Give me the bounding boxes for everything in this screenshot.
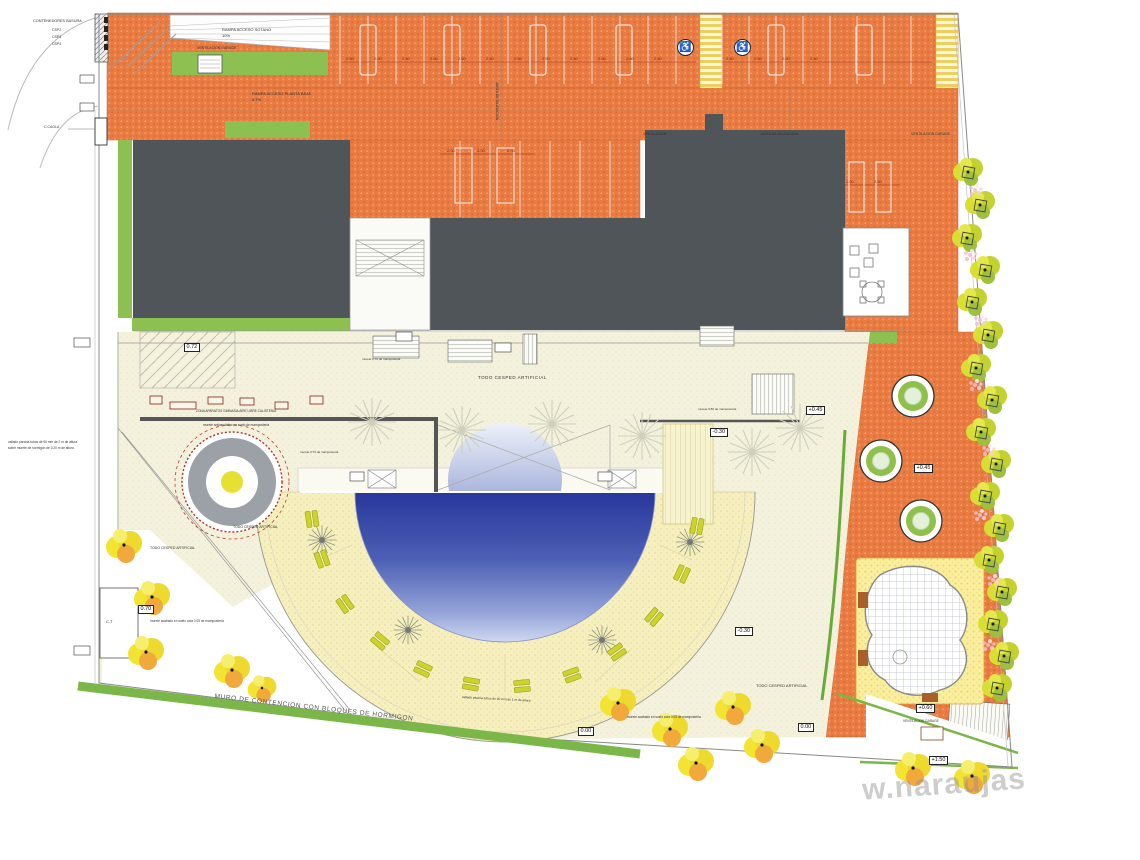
dim-stall: 2.50: [754, 56, 762, 61]
site-plan: CONTENEDORES BASURA CSP2 CSP3 CSP4 C.CAO…: [0, 0, 1140, 860]
dim-stall: 2.50: [402, 56, 410, 61]
dim-stall: 2.50: [430, 56, 438, 61]
dim-stall: 2.50: [726, 56, 734, 61]
label-cesped-bottom: TODO CESPED ARTIFICIAL: [756, 684, 807, 688]
label-vent-garage-bottom: VENTILACION GARAGE: [903, 720, 939, 724]
marker-minus030-b: -0.30: [735, 627, 753, 636]
marker-072: 0.72: [184, 343, 200, 352]
dim-stall: 2.50: [570, 56, 578, 61]
label-junta-vertical: JUNTA DE DILATACION: [494, 82, 498, 120]
label-vent-garage-right: VENTILACION GARAGE: [911, 133, 950, 137]
dim-stall: 2.50: [810, 56, 818, 61]
label-ventilacion: VENTILACION: [643, 133, 666, 137]
label-ct: C.T: [106, 620, 112, 624]
label-zona-aparatos: ZONA APARATOS GIMNASIA AIRE LIBRE CALIST…: [196, 410, 276, 414]
dim-stall: 2.50: [542, 56, 550, 61]
label-rampa-pb-slope: 5.7%: [252, 98, 261, 102]
handicap-icon: ♿: [677, 39, 694, 56]
waste-containers: [95, 14, 108, 62]
label-rampa-sotano: RAMPA ACCESO SOTANO: [222, 28, 271, 32]
label-contenedores: CONTENEDORES BASURA: [33, 19, 82, 23]
marker-plus045-b: +0.45: [914, 464, 933, 473]
dim-stall: 2.50: [458, 56, 466, 61]
dim-stall: 2.50: [514, 56, 522, 61]
marker-plus045-a: +0.45: [806, 406, 825, 415]
dim-stall: 2.50: [598, 56, 606, 61]
dim-stall: 2.50: [654, 56, 662, 61]
label-csp2: CSP2: [52, 29, 61, 33]
striped-ramp: [663, 424, 713, 524]
label-murete-005-a: murete acabado en suelo cota 0.05 de mam…: [150, 620, 224, 624]
playground: [856, 558, 984, 704]
label-vent-garage-left: VENTILACION GARAGE: [197, 47, 236, 51]
label-cesped-top: TODO CESPED ARTIFICIAL: [478, 376, 547, 381]
marker-minus030-a: -0.30: [710, 428, 728, 437]
terrace-room: [843, 228, 909, 316]
dim-stall: 2.50: [626, 56, 634, 61]
label-junta-dilatacion: JUNTA DE DILATACION: [760, 133, 798, 137]
label-vallado-parcela-1: vallado parcela tubos de 60 mm de 2 m de…: [8, 441, 77, 445]
dim-stall: 2.50: [507, 148, 515, 153]
label-murete-005-b: murete acabado en suelo cota 0.05 de mam…: [627, 716, 701, 720]
dim-stall: 2.50: [374, 56, 382, 61]
access-road-curves: [8, 18, 98, 168]
label-csp3: CSP3: [52, 36, 61, 40]
marker-zero-a: 0.00: [578, 727, 594, 736]
dim-stall: 2.50: [782, 56, 790, 61]
lightwell-stairs: [350, 218, 430, 330]
label-cesped-left: TODO CESPED ARTIFICIAL: [150, 547, 195, 551]
marker-070: 0.70: [138, 605, 154, 614]
label-murete-antivandalico: murete antivandalico en suelo de mampost…: [203, 424, 269, 428]
label-cesped-mid: TODO CESPED ARTIFICIAL: [233, 526, 278, 530]
dim-stall: 2.50: [874, 179, 882, 184]
dim-stall: 2.50: [447, 148, 455, 153]
marker-plus150: +1.50: [929, 756, 948, 765]
label-rampa-sotano-slope: 10%: [222, 34, 230, 38]
site-plan-drawing: [0, 0, 1140, 860]
marker-zero-b: 0.00: [798, 723, 814, 732]
label-murete-070-b: murete 0.70 de mamposteria: [300, 451, 338, 454]
label-murete-070-a: murete 0.70 de mamposteria: [362, 358, 400, 361]
label-ccaola: C.CAOLA: [44, 126, 59, 130]
label-murete-080: murete 0.80 de mamposteria: [698, 408, 736, 411]
dim-stall: 2.50: [846, 179, 854, 184]
dim-stall: 2.50: [477, 148, 485, 153]
dim-stall: 2.50: [486, 56, 494, 61]
label-rampa-pb: RAMPA ACCESO PLANTA BAJA: [252, 92, 311, 96]
marker-plus060: +0.60: [916, 704, 935, 713]
label-vallado-parcela-2: sobre murete de hormigon de 0.20 m de al…: [8, 447, 74, 451]
handicap-icon: ♿: [734, 39, 751, 56]
label-csp4: CSP4: [52, 43, 61, 47]
dim-stall: 2.50: [346, 56, 354, 61]
